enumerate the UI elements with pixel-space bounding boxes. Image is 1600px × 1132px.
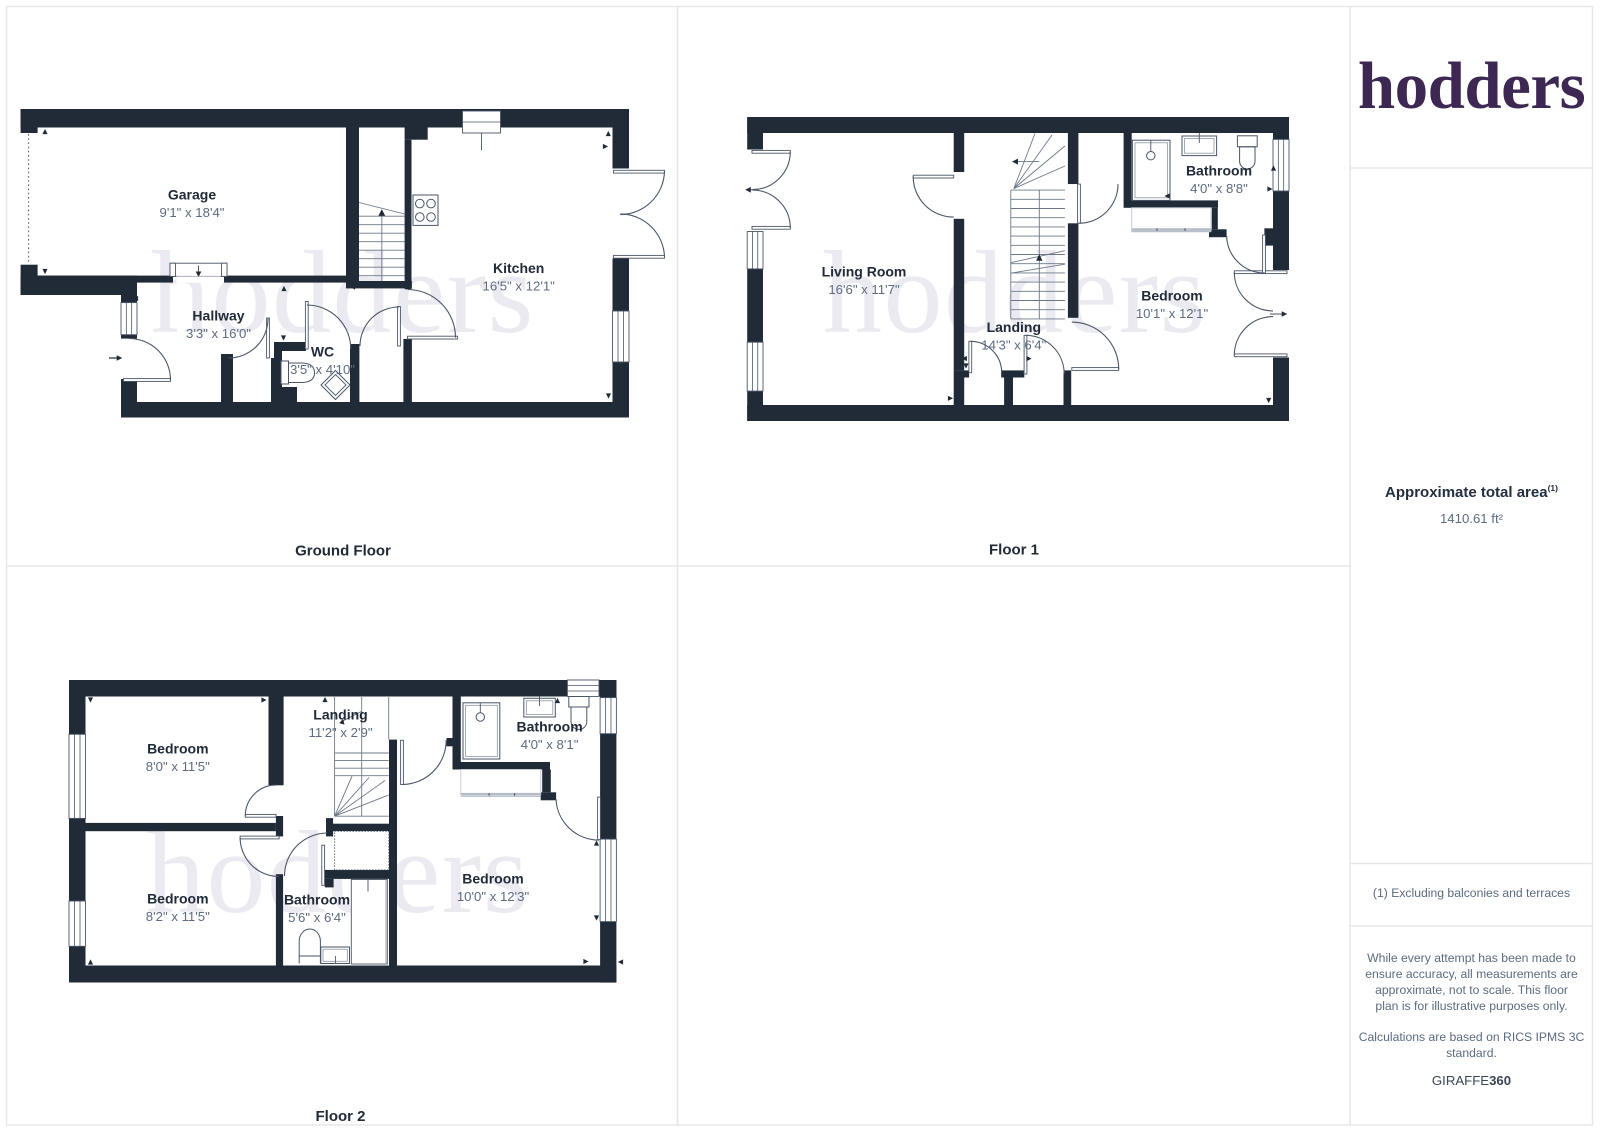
svg-text:Floor 1: Floor 1	[989, 542, 1039, 559]
svg-text:8'2" x 11'5": 8'2" x 11'5"	[146, 909, 210, 924]
svg-text:3'5" x 4'10": 3'5" x 4'10"	[290, 362, 355, 377]
svg-text:Ground Floor: Ground Floor	[295, 543, 391, 560]
svg-text:Living Room: Living Room	[822, 264, 907, 280]
svg-text:4'0" x 8'8": 4'0" x 8'8"	[1190, 181, 1248, 196]
svg-text:9'1" x 18'4": 9'1" x 18'4"	[160, 205, 225, 220]
svg-text:5'6" x 6'4": 5'6" x 6'4"	[288, 910, 346, 925]
svg-text:Landing: Landing	[313, 707, 367, 723]
svg-text:Kitchen: Kitchen	[493, 260, 544, 276]
svg-text:3'3" x 16'0": 3'3" x 16'0"	[186, 326, 251, 341]
svg-text:16'6" x 11'7": 16'6" x 11'7"	[828, 282, 900, 297]
svg-text:11'2" x 2'9": 11'2" x 2'9"	[308, 725, 372, 740]
svg-text:8'0" x 11'5": 8'0" x 11'5"	[146, 759, 210, 774]
svg-text:16'5" x 12'1": 16'5" x 12'1"	[483, 279, 556, 294]
svg-text:10'0" x 12'3": 10'0" x 12'3"	[457, 889, 530, 904]
svg-text:Garage: Garage	[168, 187, 216, 203]
svg-text:Bathroom: Bathroom	[284, 892, 350, 908]
svg-text:Bedroom: Bedroom	[462, 871, 523, 887]
svg-text:Floor 2: Floor 2	[315, 1108, 365, 1125]
svg-text:14'3" x 6'4": 14'3" x 6'4"	[981, 338, 1046, 353]
svg-text:Bedroom: Bedroom	[1141, 288, 1202, 304]
svg-text:4'0" x 8'1": 4'0" x 8'1"	[521, 737, 579, 752]
svg-text:WC: WC	[311, 344, 334, 360]
svg-text:Hallway: Hallway	[192, 308, 244, 324]
svg-text:Bedroom: Bedroom	[147, 891, 208, 907]
svg-text:Bathroom: Bathroom	[517, 719, 583, 735]
svg-text:Bedroom: Bedroom	[147, 741, 208, 757]
svg-text:Bathroom: Bathroom	[1186, 163, 1252, 179]
svg-text:Landing: Landing	[987, 319, 1041, 335]
svg-text:10'1" x 12'1": 10'1" x 12'1"	[1136, 306, 1209, 321]
